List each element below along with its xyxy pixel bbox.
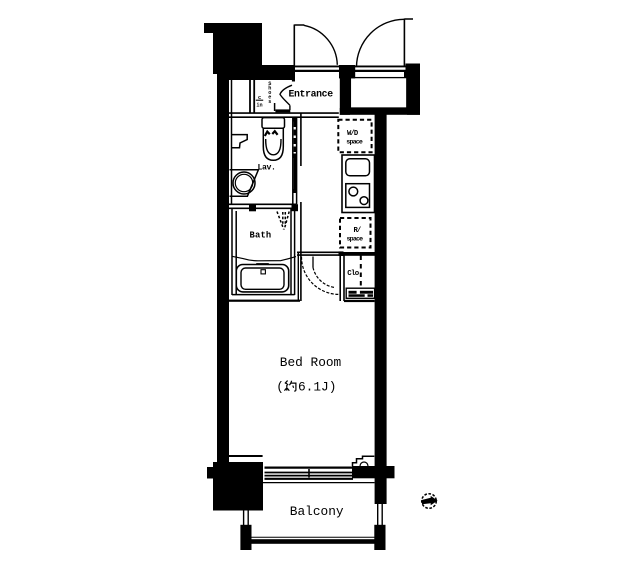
svg-text:W/D: W/D [347,130,359,138]
svg-text:space: space [347,236,364,243]
svg-text:Entrance: Entrance [289,89,334,100]
svg-text:in: in [256,102,262,108]
svg-text:6.1J): 6.1J) [298,380,336,395]
svg-text:(: ( [276,380,284,395]
svg-text:R/: R/ [354,227,361,235]
svg-text:Bed Room: Bed Room [280,355,342,370]
svg-text:Clo.: Clo. [347,270,362,278]
svg-text:s: s [268,99,271,105]
svg-text:Bath: Bath [250,231,272,241]
svg-text:space: space [346,139,363,146]
svg-text:Lav.: Lav. [258,163,276,172]
svg-text:Balcony: Balcony [290,504,344,519]
